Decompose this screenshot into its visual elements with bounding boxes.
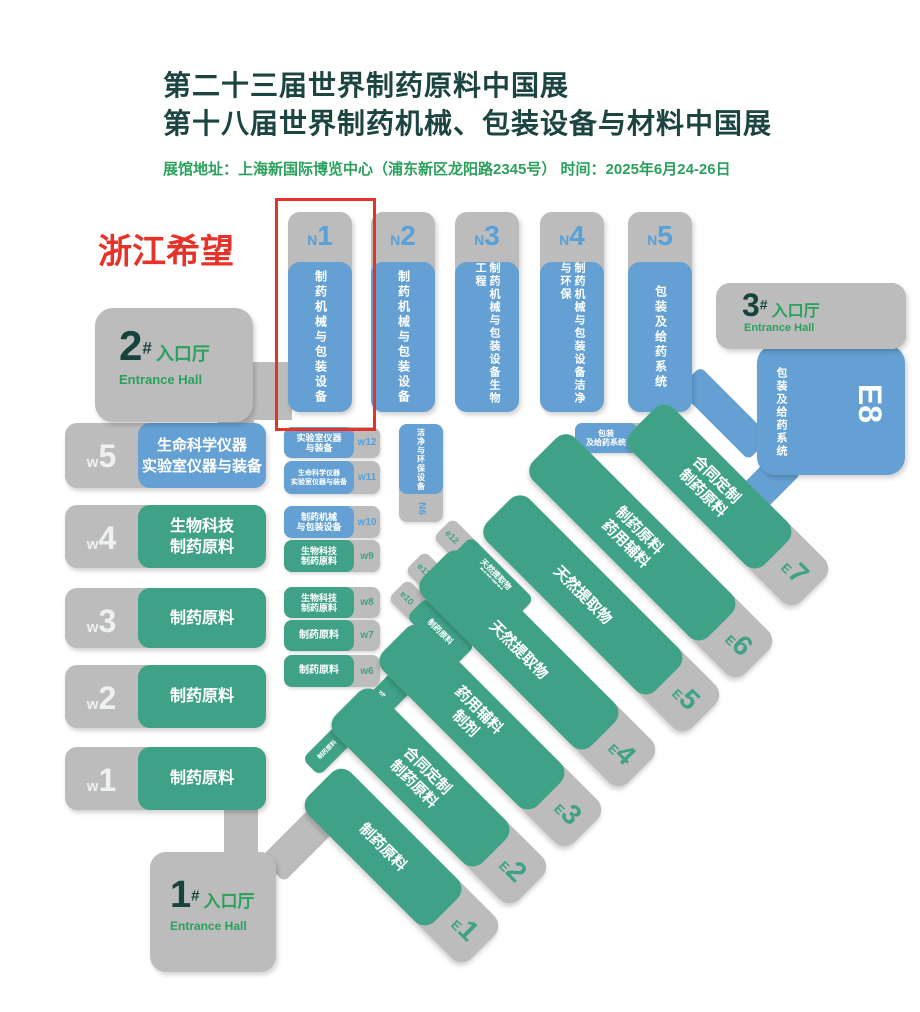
hall-w5: w5 生命科学仪器实验室仪器与装备 xyxy=(65,423,266,488)
annotation-highlight-box-n1 xyxy=(275,198,376,431)
entrance-hall-2: 2#入口厅 Entrance Hall xyxy=(95,308,253,422)
mini-hall-w9: 生物科技制药原料 w9 xyxy=(284,540,380,572)
exhibition-floorplan: 第二十三届世界制药原料中国展 第十八届世界制药机械、包装设备与材料中国展 展馆地… xyxy=(0,0,920,1012)
mini-hall-w7: 制药原料 w7 xyxy=(284,620,380,651)
entrance-hall-3: 3#入口厅 Entrance Hall xyxy=(716,283,906,349)
hall-n5-body: 包装及给药系统 xyxy=(628,262,692,412)
entrance-hall-1: 1#入口厅 Entrance Hall xyxy=(150,852,276,972)
mini-hall-w12-label: w12 xyxy=(354,427,380,458)
hall-n2: N2 制药机械与包装设备 xyxy=(371,212,435,412)
hall-w2-tab: w2 xyxy=(65,665,138,728)
hall-w5-body: 生命科学仪器实验室仪器与装备 xyxy=(138,423,266,488)
hall-w3-tab: w3 xyxy=(65,588,138,648)
hall-w4: w4 生物科技制药原料 xyxy=(65,505,266,568)
hall-w5-tab: w5 xyxy=(65,423,138,488)
mini-hall-w10: 制药机械与包装设备 w10 xyxy=(284,506,380,538)
venue-address-and-dates: 展馆地址：上海新国际博览中心（浦东新区龙阳路2345号） 时间：2025年6月2… xyxy=(163,158,731,179)
page-title-line1: 第二十三届世界制药原料中国展 xyxy=(163,64,569,104)
hall-w1-body: 制药原料 xyxy=(138,747,266,810)
hall-e8-label: E8 xyxy=(851,384,888,423)
hall-n3-body: 制药机械与包装设备生物工程 xyxy=(455,262,519,412)
mini-hall-w8-label: w8 xyxy=(354,587,380,618)
annotation-zhejiang-hope: 浙江希望 xyxy=(98,224,234,273)
hash-superscript: # xyxy=(760,297,768,313)
hall-w4-tab: w4 xyxy=(65,505,138,568)
mini-hall-w9-label: w9 xyxy=(354,540,380,572)
hall-w3: w3 制药原料 xyxy=(65,588,266,648)
mini-hall-n6-label: N6 xyxy=(399,494,443,522)
hall-n4: N4 制药机械与包装设备洁净与环保 xyxy=(540,212,604,412)
hall-w1: w1 制药原料 xyxy=(65,747,266,810)
hall-w2: w2 制药原料 xyxy=(65,665,266,728)
mini-hall-w6: 制药原料 w6 xyxy=(284,655,380,687)
hall-w4-body: 生物科技制药原料 xyxy=(138,505,266,568)
mini-hall-w6-label: w6 xyxy=(354,655,380,687)
hall-n4-body: 制药机械与包装设备洁净与环保 xyxy=(540,262,604,412)
hall-w3-body: 制药原料 xyxy=(138,588,266,648)
hall-n3: N3 制药机械与包装设备生物工程 xyxy=(455,212,519,412)
hall-n5: N5 包装及给药系统 xyxy=(628,212,692,412)
mini-hall-w8: 生物科技制药原料 w8 xyxy=(284,587,380,618)
mini-hall-n6: 洁净与环保设备 N6 xyxy=(399,424,443,522)
page-title-line2: 第十八届世界制药机械、包装设备与材料中国展 xyxy=(163,102,772,142)
mini-hall-w11-label: w11 xyxy=(354,461,380,494)
mini-hall-w10-label: w10 xyxy=(354,506,380,538)
mini-hall-w7-label: w7 xyxy=(354,620,380,651)
hall-e8: 包装及给药系统 E8 xyxy=(757,345,905,475)
hall-w1-tab: w1 xyxy=(65,747,138,810)
connector-w1-entrance1 xyxy=(224,804,258,856)
hash-superscript: # xyxy=(142,339,151,358)
hall-w2-body: 制药原料 xyxy=(138,665,266,728)
mini-hall-w11: 生命科学仪器实验室仪器与装备 w11 xyxy=(284,461,380,494)
hall-n2-body: 制药机械与包装设备 xyxy=(371,262,435,412)
mini-hall-w12: 实验室仪器与装备 w12 xyxy=(284,427,380,458)
hash-superscript: # xyxy=(191,888,199,905)
